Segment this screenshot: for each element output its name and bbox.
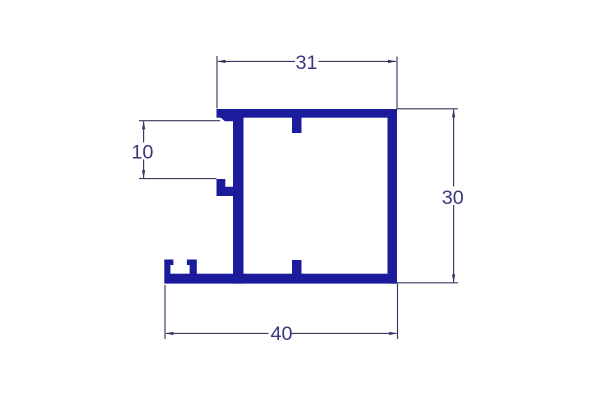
svg-text:10: 10 <box>131 141 153 163</box>
svg-text:31: 31 <box>295 52 317 74</box>
svg-text:40: 40 <box>270 323 292 345</box>
svg-text:30: 30 <box>442 187 464 209</box>
